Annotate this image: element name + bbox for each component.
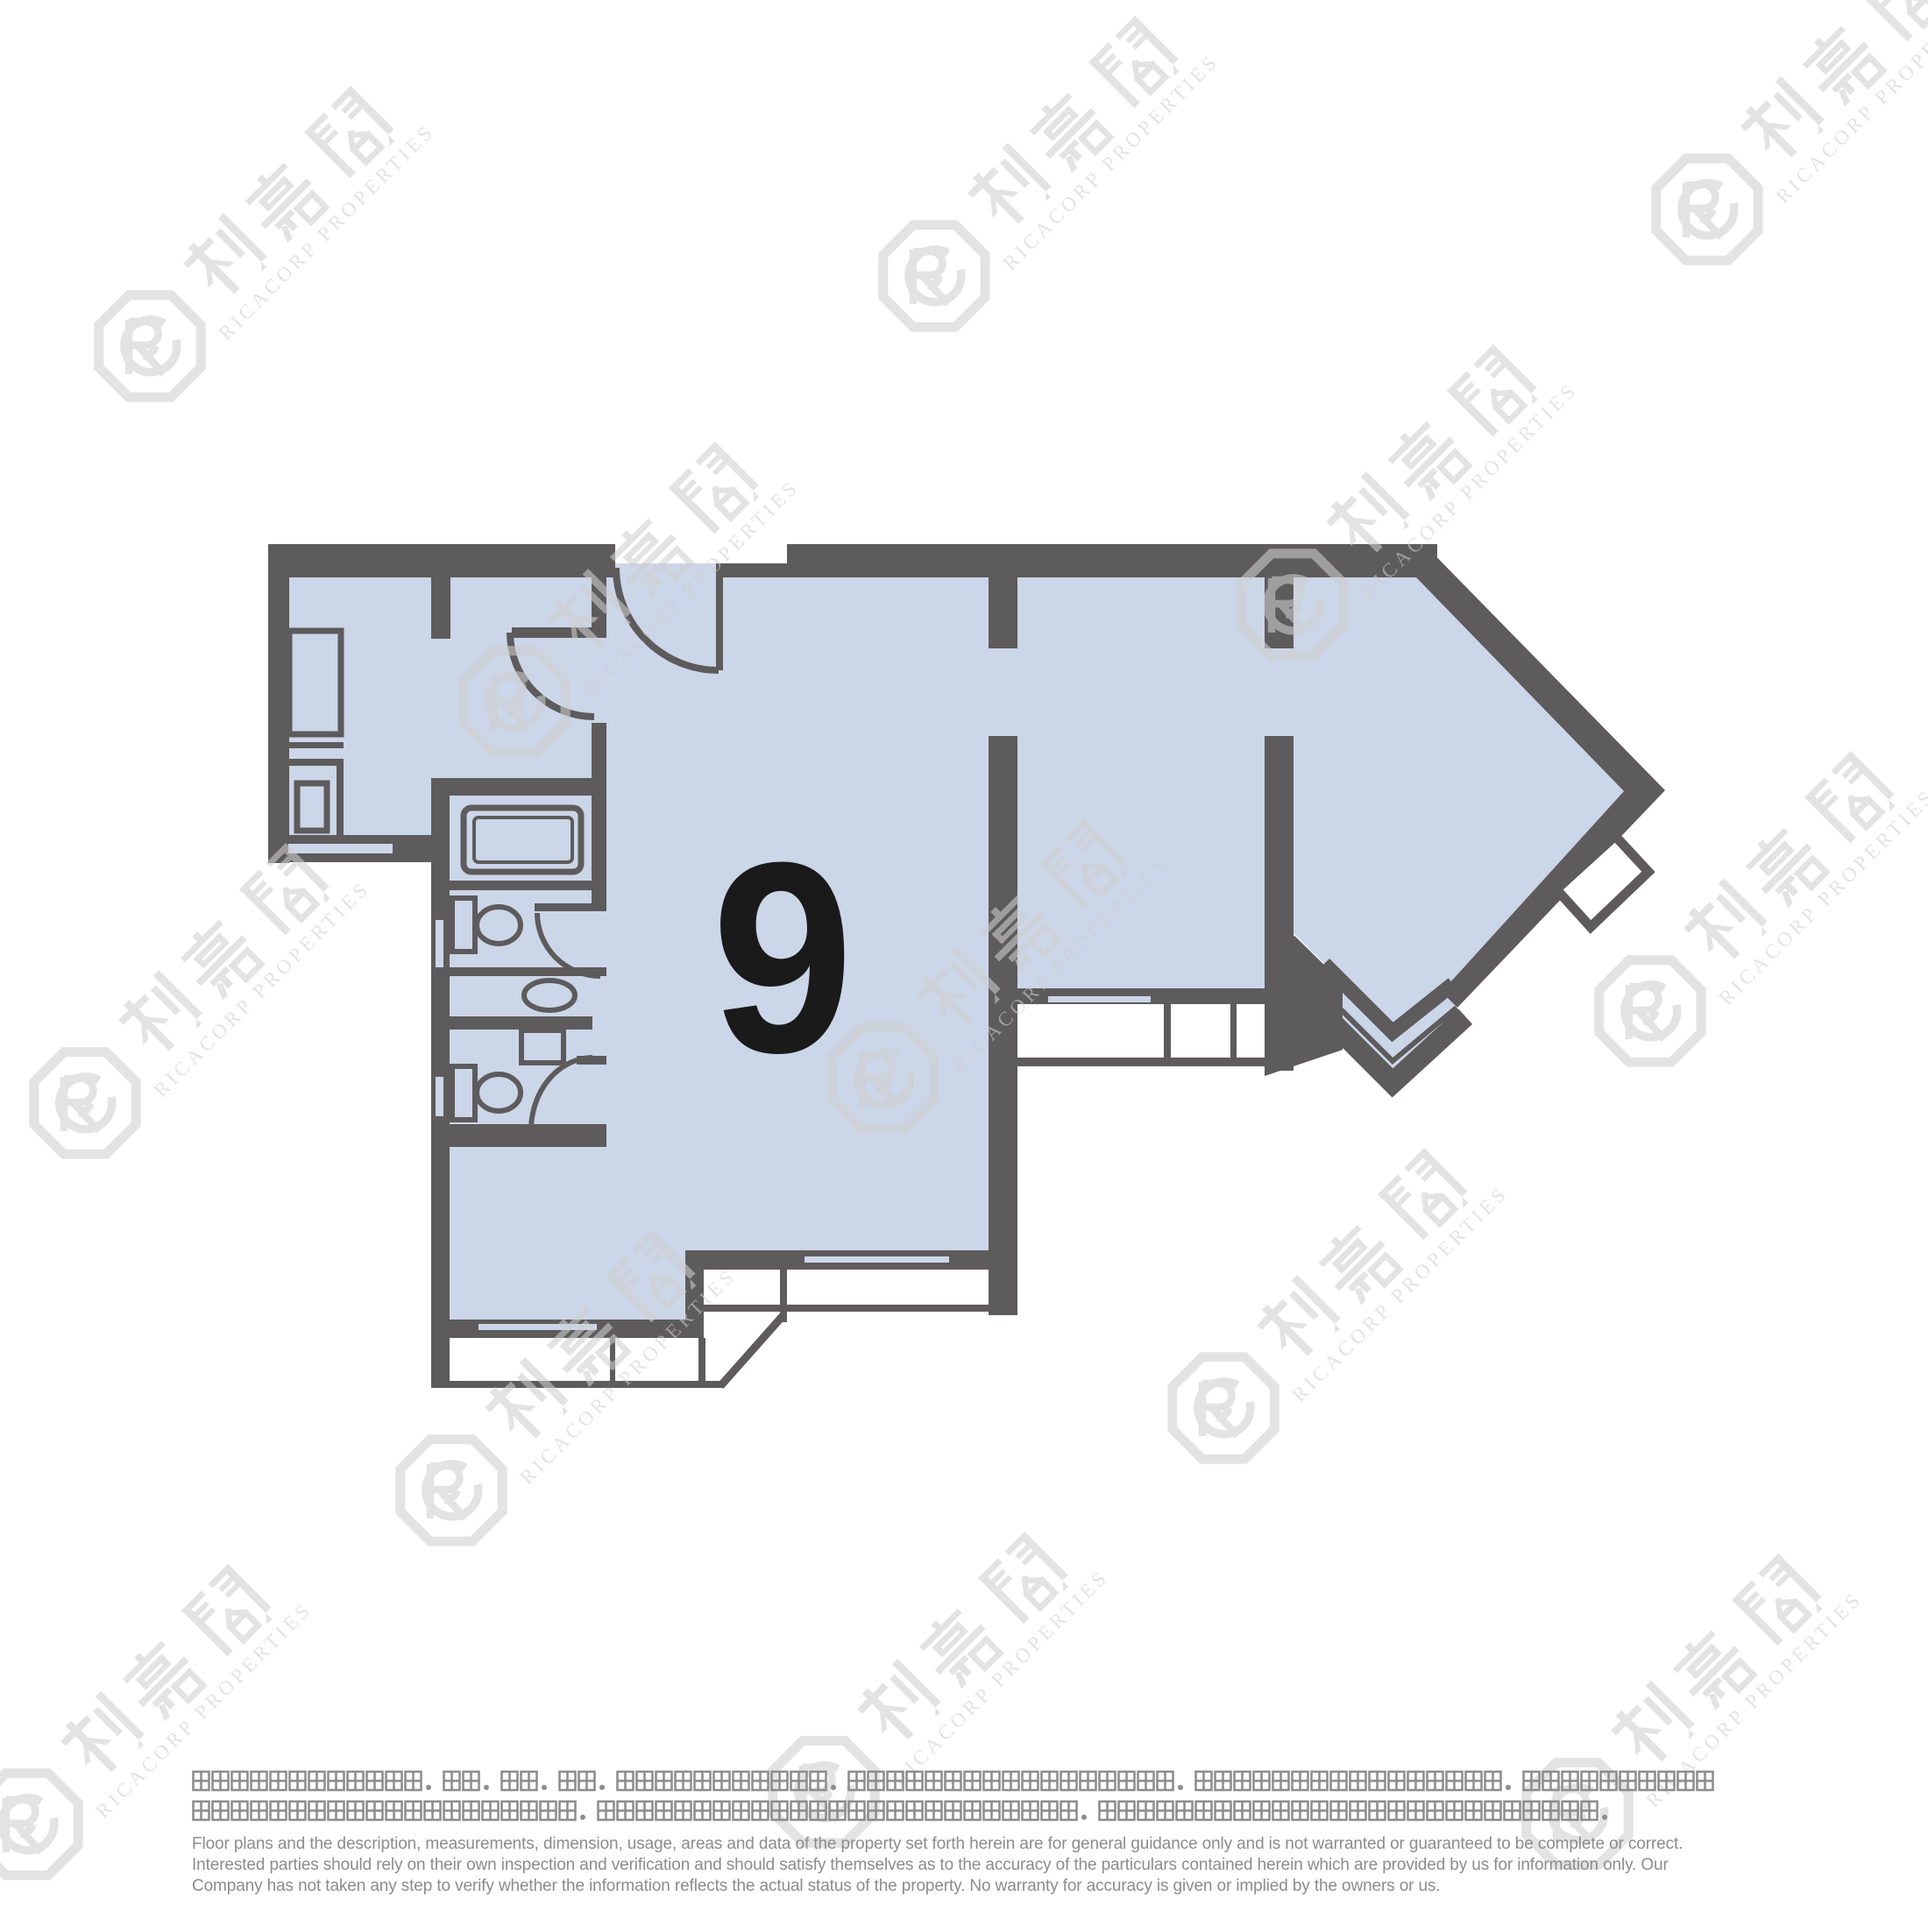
svg-text:RICACORP PROPERTIES: RICACORP PROPERTIES: [1715, 784, 1928, 1008]
svg-text:Floor plans and the descriptio: Floor plans and the description, measure…: [192, 1835, 1683, 1853]
svg-text:Company has not taken any step: Company has not taken any step to verify…: [192, 1877, 1441, 1895]
svg-text:Interested parties should rely: Interested parties should rely on their …: [192, 1856, 1669, 1874]
